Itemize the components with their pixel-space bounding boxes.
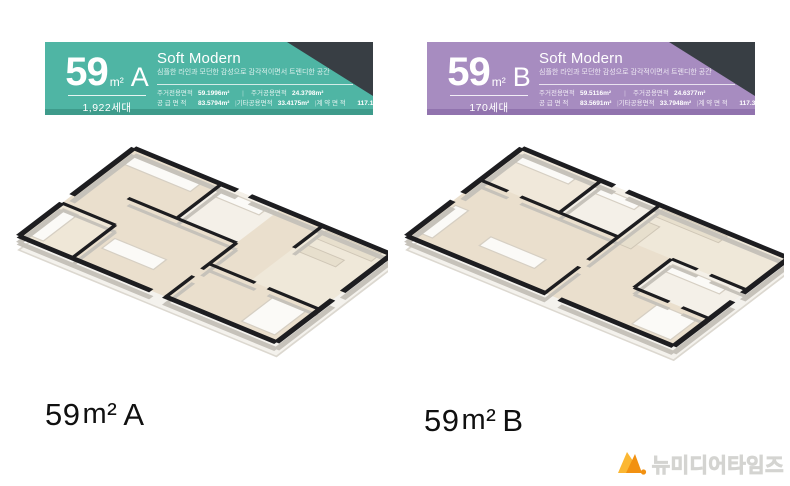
spec-label: 기타공용면적: [619, 99, 660, 108]
spec-row-1: 주거전용면적59.5116m² | 주거공용면적24.6377m²: [539, 89, 747, 99]
spec-value: 83.5794m²: [198, 99, 235, 108]
unit-a-caption: 59 m² A: [45, 398, 145, 432]
spec-label: 공 급 면 적: [157, 99, 198, 108]
unit-size-number: 59: [65, 52, 108, 92]
spec-divider: |: [235, 89, 251, 98]
newmedia-times-logo-icon: [617, 450, 647, 478]
concept-title: Soft Modern: [157, 51, 365, 67]
unit-b-info-banner: 59 m² B 170세대 Soft Modern 심플한 라인과 모던한 감성…: [427, 42, 755, 115]
spec-label: 기타공용면적: [237, 99, 278, 108]
unit-b-concept-block: Soft Modern 심플한 라인과 모던한 감성으로 감각적이면서 트렌디한…: [539, 51, 747, 109]
unit-size-number: 59: [447, 52, 490, 92]
divider-line: [68, 95, 146, 96]
unit-size-unit: m²: [492, 76, 506, 88]
spec-value: 24.3798m²: [292, 89, 329, 98]
caption-unit: m²: [461, 404, 496, 436]
unit-type-letter: A: [131, 62, 149, 92]
spec-label: 계 약 면 적: [698, 99, 739, 108]
spec-value: 33.4175m²: [278, 99, 315, 108]
divider-line: [539, 84, 735, 85]
floorplan-a-svg: [16, 122, 388, 398]
spec-divider: |: [617, 89, 633, 98]
spec-row-2: 공 급 면 적83.5794m² | 기타공용면적33.4175m² | 계 약…: [157, 99, 365, 109]
floorplan-b-svg: [402, 122, 784, 406]
caption-letter: B: [502, 404, 523, 438]
unit-type-letter: B: [513, 62, 531, 92]
divider-line: [157, 84, 353, 85]
unit-a-floorplan-image: [16, 122, 388, 398]
unit-size-unit: m²: [110, 76, 124, 88]
spec-value: 117.3636m²: [739, 99, 776, 108]
caption-number: 59: [424, 404, 459, 438]
caption-number: 59: [45, 398, 80, 432]
household-count: 170세대: [441, 100, 537, 115]
spec-label: 계 약 면 적: [316, 99, 357, 108]
spec-value: 83.5691m²: [580, 99, 617, 108]
spec-value: 59.5116m²: [580, 89, 617, 98]
unit-a-size-block: 59 m² A 1,922세대: [59, 50, 155, 115]
concept-title: Soft Modern: [539, 51, 747, 67]
watermark-text: 뉴미디어타임즈: [652, 449, 784, 478]
spec-row-1: 주거전용면적59.1996m² | 주거공용면적24.3798m²: [157, 89, 365, 99]
spec-label: 주거전용면적: [157, 89, 198, 98]
divider-line: [450, 95, 528, 96]
unit-a-concept-block: Soft Modern 심플한 라인과 모던한 감성으로 감각적이면서 트렌디한…: [157, 51, 365, 109]
article-image: 59 m² A 1,922세대 Soft Modern 심플한 라인과 모던한 …: [0, 0, 790, 486]
spec-value: 59.1996m²: [198, 89, 235, 98]
spec-value: 33.7948m²: [660, 99, 697, 108]
unit-a-info-banner: 59 m² A 1,922세대 Soft Modern 심플한 라인과 모던한 …: [45, 42, 373, 115]
caption-unit: m²: [82, 398, 117, 430]
spec-value: 24.6377m²: [674, 89, 711, 98]
spec-row-2: 공 급 면 적83.5691m² | 기타공용면적33.7948m² | 계 약…: [539, 99, 747, 109]
spec-label: 공 급 면 적: [539, 99, 580, 108]
household-count: 1,922세대: [59, 100, 155, 115]
spec-label: 주거공용면적: [251, 89, 292, 98]
newmedia-times-watermark: 뉴미디어타임즈: [617, 449, 784, 478]
caption-letter: A: [123, 398, 144, 432]
unit-b-floorplan-image: [402, 122, 784, 406]
concept-subtitle: 심플한 라인과 모던한 감성으로 감각적이면서 트렌디한 공간: [157, 69, 365, 77]
unit-b-size-block: 59 m² B 170세대: [441, 50, 537, 115]
concept-subtitle: 심플한 라인과 모던한 감성으로 감각적이면서 트렌디한 공간: [539, 69, 747, 77]
spec-value: 117.1947m²: [357, 99, 394, 108]
spec-label: 주거공용면적: [633, 89, 674, 98]
spec-label: 주거전용면적: [539, 89, 580, 98]
unit-b-caption: 59 m² B: [424, 404, 524, 438]
